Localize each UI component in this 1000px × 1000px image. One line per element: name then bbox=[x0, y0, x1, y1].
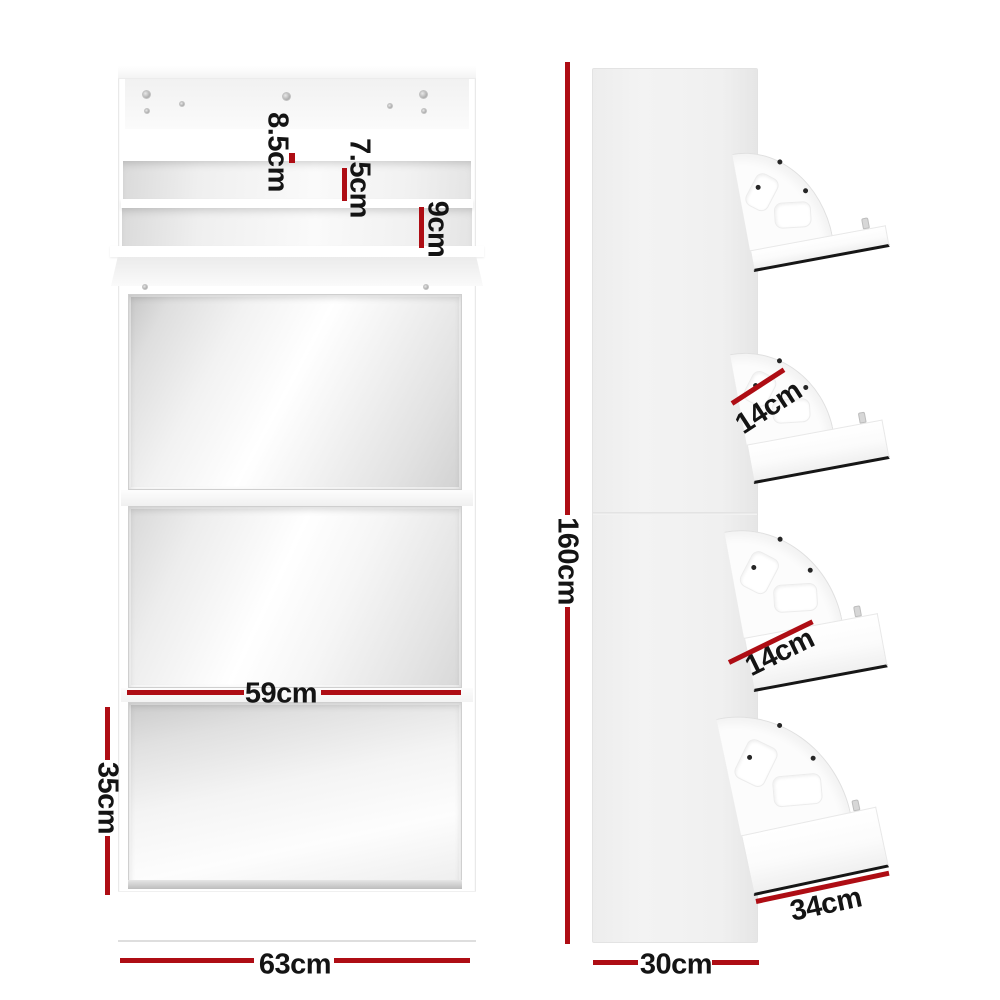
hinge-pin-icon bbox=[858, 412, 867, 424]
side-cabinet-seam bbox=[593, 512, 757, 515]
tilt-bracket bbox=[732, 139, 833, 253]
dim-label-drawer-height: 35cm bbox=[93, 762, 122, 834]
tilt-drawer-lip-face bbox=[111, 257, 483, 286]
screw-icon bbox=[142, 284, 148, 290]
hinge-pin-icon bbox=[861, 217, 870, 229]
dim-label-bottom-slot: 9cm bbox=[423, 201, 452, 258]
dim-label-top-slot: 8.5cm bbox=[263, 112, 292, 192]
dim-label-overall-width: 63cm bbox=[259, 951, 331, 980]
mirror-panel-3-bottom-shadow bbox=[128, 880, 462, 889]
side-tilt-drawer-1 bbox=[732, 127, 890, 272]
dim-line-mirror-width bbox=[127, 690, 244, 695]
screw-icon bbox=[778, 536, 784, 542]
screw-icon bbox=[282, 92, 291, 101]
top-compartment-back-panel bbox=[125, 79, 469, 129]
screw-icon bbox=[803, 384, 809, 390]
front-cabinet-base bbox=[118, 891, 476, 942]
drawer-seam-1 bbox=[121, 490, 473, 506]
screw-icon bbox=[387, 103, 393, 109]
shoe-cabinet-dimension-diagram: 8.5cm 7.5cm 9cm 59cm 35cm 63cm 160cm 14c… bbox=[0, 0, 1000, 1000]
mirror-panel-1 bbox=[128, 294, 462, 490]
tilt-bracket bbox=[724, 514, 842, 640]
dim-label-overall-height: 160cm bbox=[553, 517, 582, 605]
screw-icon bbox=[776, 722, 782, 728]
screw-icon bbox=[423, 284, 429, 290]
dim-line-overall-width bbox=[334, 958, 470, 963]
top-compartment-opening bbox=[125, 129, 469, 161]
dim-label-mirror-width: 59cm bbox=[245, 680, 317, 709]
hinge-pin-icon bbox=[851, 799, 860, 811]
screw-icon bbox=[421, 108, 427, 114]
dim-line-overall-width bbox=[120, 958, 254, 963]
dim-label-overall-depth: 30cm bbox=[640, 951, 712, 980]
screw-icon bbox=[755, 184, 761, 190]
screw-icon bbox=[144, 108, 150, 114]
dim-line-mirror-width bbox=[321, 690, 461, 695]
shoe-slot-upper bbox=[123, 161, 471, 201]
bracket-cutout bbox=[772, 772, 823, 807]
screw-icon bbox=[777, 159, 783, 165]
dim-line-overall-depth bbox=[712, 960, 759, 965]
bracket-cutout bbox=[773, 201, 811, 229]
dim-label-middle-slot: 7.5cm bbox=[345, 138, 374, 218]
screw-icon bbox=[179, 101, 185, 107]
mirror-panel-3 bbox=[128, 702, 462, 884]
dim-line-overall-height bbox=[565, 607, 570, 944]
dim-line-drawer-height bbox=[105, 836, 110, 895]
bracket-cutout bbox=[772, 583, 817, 614]
dim-line-overall-height bbox=[565, 62, 570, 515]
hinge-pin-icon bbox=[853, 605, 862, 617]
screw-icon bbox=[142, 90, 151, 99]
screw-icon bbox=[811, 755, 817, 761]
screw-icon bbox=[808, 567, 814, 573]
screw-icon bbox=[803, 187, 809, 193]
mirror-panel-2 bbox=[128, 506, 462, 688]
front-cabinet-top-edge bbox=[118, 66, 476, 79]
side-cabinet-body bbox=[592, 68, 758, 943]
dim-line-overall-depth bbox=[593, 960, 638, 965]
screw-icon bbox=[777, 358, 783, 364]
dim-line-drawer-height bbox=[105, 707, 110, 760]
screw-icon bbox=[419, 90, 428, 99]
